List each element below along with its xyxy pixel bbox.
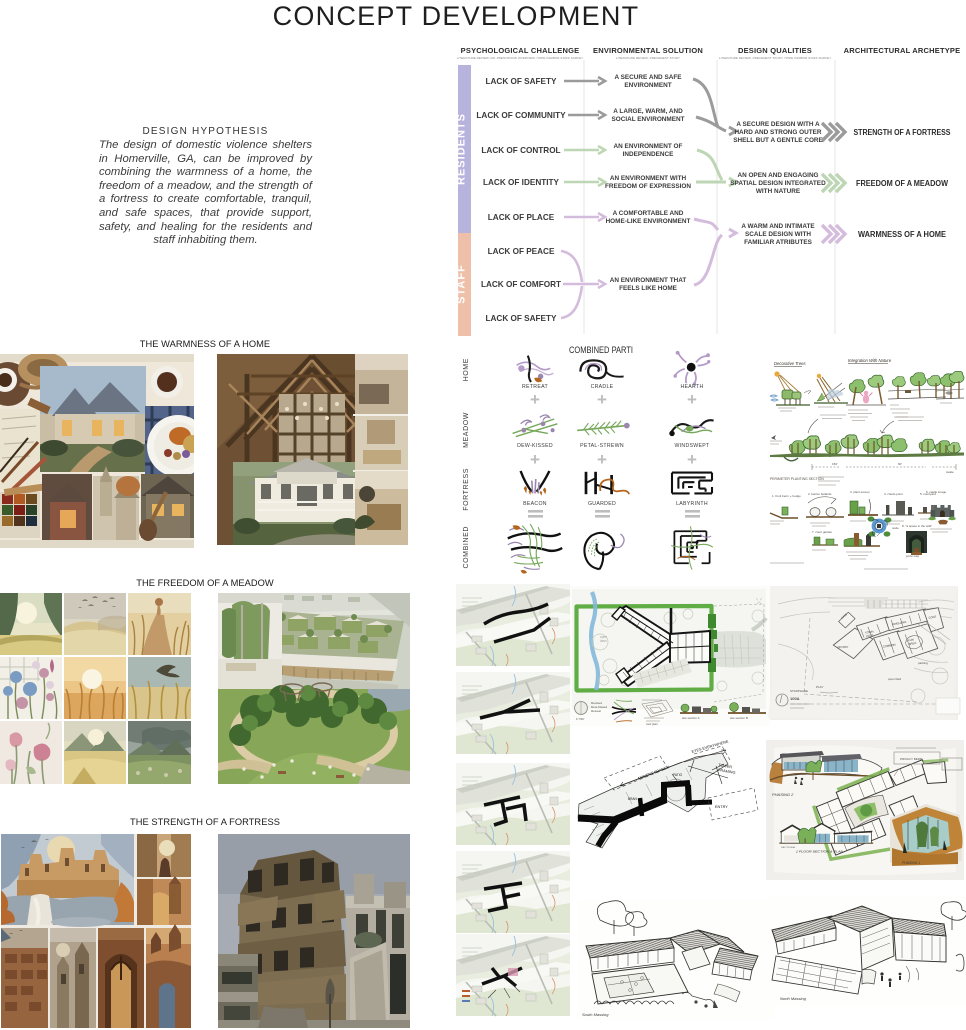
svg-text:LACK OF SAFETY: LACK OF SAFETY bbox=[486, 314, 557, 323]
svg-text:+: + bbox=[687, 390, 697, 409]
svg-text:swale: swale bbox=[946, 470, 954, 474]
svg-text:open field: open field bbox=[888, 677, 901, 681]
svg-text:PERIMETER PLANTING SECTION: PERIMETER PLANTING SECTION bbox=[770, 477, 824, 481]
svg-text:LACK OF COMFORT: LACK OF COMFORT bbox=[481, 280, 561, 289]
svg-text:LACK OF COMMUNITY: LACK OF COMMUNITY bbox=[476, 111, 566, 120]
svg-text:DEW-KISSED: DEW-KISSED bbox=[517, 443, 553, 449]
svg-text:SCALE DESIGN WITH: SCALE DESIGN WITH bbox=[745, 231, 811, 238]
svg-text:roof plan: roof plan bbox=[646, 722, 658, 726]
svg-text:150': 150' bbox=[832, 462, 838, 466]
svg-text:A SECURE DESIGN WITH A: A SECURE DESIGN WITH A bbox=[736, 121, 820, 128]
svg-text:+: + bbox=[530, 390, 540, 409]
svg-text:HOME: HOME bbox=[463, 358, 470, 381]
svg-text:Retreat: Retreat bbox=[591, 709, 601, 713]
svg-text:ENVIRONMENTAL SOLUTION: ENVIRONMENTAL SOLUTION bbox=[593, 46, 703, 55]
svg-text:3. plant screen: 3. plant screen bbox=[850, 490, 870, 494]
svg-text:7. court garden: 7. court garden bbox=[812, 530, 833, 534]
svg-text:LACK OF CONTROL: LACK OF CONTROL bbox=[481, 146, 560, 155]
svg-text:A WARM AND INTIMATE: A WARM AND INTIMATE bbox=[741, 223, 815, 230]
svg-text:INDEPENDENCE: INDEPENDENCE bbox=[623, 151, 675, 158]
svg-text:PHASING 2: PHASING 2 bbox=[772, 792, 794, 797]
svg-text:COMBINED: COMBINED bbox=[463, 526, 470, 569]
svg-text:BRAN: BRAN bbox=[628, 797, 638, 801]
svg-text:2. barrier bollards: 2. barrier bollards bbox=[808, 492, 832, 496]
svg-text:BEACON: BEACON bbox=[523, 501, 547, 507]
svg-text:4. check-point: 4. check-point bbox=[884, 492, 903, 496]
svg-text:PETAL-STREWN: PETAL-STREWN bbox=[580, 443, 624, 449]
svg-text:A SECURE AND SAFE: A SECURE AND SAFE bbox=[615, 74, 683, 81]
svg-text:GUARDED: GUARDED bbox=[588, 501, 616, 507]
svg-text:STARPHASE: STARPHASE bbox=[790, 689, 808, 693]
svg-text:SPATIAL DESIGN INTEGRATED: SPATIAL DESIGN INTEGRATED bbox=[730, 180, 826, 187]
svg-text:LITERATURE REVIEW, PRECEDENT S: LITERATURE REVIEW, PRECEDENT STUDY bbox=[616, 56, 681, 60]
svg-text:site section A: site section A bbox=[682, 716, 700, 720]
svg-text:+: + bbox=[597, 450, 607, 469]
svg-text:LACK OF IDENTITY: LACK OF IDENTITY bbox=[483, 178, 559, 187]
svg-text:LACK OF PEACE: LACK OF PEACE bbox=[488, 247, 555, 256]
svg-text:PATIO: PATIO bbox=[673, 773, 683, 777]
svg-text:ENVIRONMENT: ENVIRONMENT bbox=[624, 82, 671, 89]
svg-text:AN OPEN AND ENGAGING: AN OPEN AND ENGAGING bbox=[737, 172, 818, 179]
svg-text:MEADOW: MEADOW bbox=[463, 412, 470, 448]
svg-text:COMBINED PARTI: COMBINED PARTI bbox=[569, 345, 633, 356]
svg-text:Decorative Trees: Decorative Trees bbox=[774, 361, 806, 366]
svg-text:PRIVACY BERM: PRIVACY BERM bbox=[900, 757, 923, 761]
svg-text:100A: 100A bbox=[790, 696, 800, 701]
svg-text:A LARGE, WARM, AND: A LARGE, WARM, AND bbox=[613, 108, 683, 115]
svg-text:SECTION A: SECTION A bbox=[781, 846, 795, 849]
svg-text:FAMILIAR ATRIBUTES: FAMILIAR ATRIBUTES bbox=[744, 239, 813, 246]
svg-text:parking: parking bbox=[918, 661, 928, 665]
svg-text:ENTRY: ENTRY bbox=[715, 805, 728, 809]
svg-text:PLAY: PLAY bbox=[816, 685, 823, 689]
svg-text:FREEDOM OF A MEADOW: FREEDOM OF A MEADOW bbox=[856, 178, 949, 188]
svg-text:LACK OF SAFETY: LACK OF SAFETY bbox=[486, 77, 557, 86]
svg-text:1. front berm + hedge: 1. front berm + hedge bbox=[772, 494, 801, 498]
svg-text:A COMFORTABLE AND: A COMFORTABLE AND bbox=[613, 210, 684, 217]
svg-text:SOCIAL ENVIRONMENT: SOCIAL ENVIRONMENT bbox=[611, 116, 684, 123]
svg-text:FREEDOM OF EXPRESSION: FREEDOM OF EXPRESSION bbox=[605, 183, 691, 190]
svg-text:LITERATURE REVIEW, DR. PRESTWO: LITERATURE REVIEW, DR. PRESTWOOD INTERVI… bbox=[457, 56, 584, 60]
svg-text:porte way: porte way bbox=[906, 554, 920, 558]
svg-text:+: + bbox=[597, 390, 607, 409]
svg-text:WINDSWEPT: WINDSWEPT bbox=[675, 443, 711, 449]
svg-text:1 FLOOR SECTION & PLAN: 1 FLOOR SECTION & PLAN bbox=[796, 850, 844, 854]
svg-text:PHASING 1: PHASING 1 bbox=[902, 861, 920, 865]
svg-text:STAFF: STAFF bbox=[456, 264, 468, 304]
svg-text:LITERATURE REVIEW, PRECEDENT S: LITERATURE REVIEW, PRECEDENT STUDY, HOPE… bbox=[719, 56, 832, 60]
svg-text:HOME-LIKE ENVIRONMENT: HOME-LIKE ENVIRONMENT bbox=[606, 218, 691, 225]
svg-text:PSYCHOLOGICAL CHALLENGE: PSYCHOLOGICAL CHALLENGE bbox=[461, 46, 580, 55]
svg-text:60': 60' bbox=[898, 462, 902, 466]
svg-text:HARD AND STRONG OUTER: HARD AND STRONG OUTER bbox=[734, 129, 821, 136]
svg-text:+: + bbox=[530, 450, 540, 469]
svg-text:Integration With Nature: Integration With Nature bbox=[848, 358, 892, 363]
svg-text:STRENGTH OF A FORTRESS: STRENGTH OF A FORTRESS bbox=[854, 127, 951, 137]
svg-text:site section B: site section B bbox=[730, 716, 748, 720]
svg-text:AN ENVIRONMENT OF: AN ENVIRONMENT OF bbox=[614, 143, 683, 150]
svg-text:AN ENVIRONMENT THAT: AN ENVIRONMENT THAT bbox=[610, 277, 687, 284]
svg-text:North Massing: North Massing bbox=[780, 996, 807, 1001]
svg-text:SHELL BUT A GENTLE CORE: SHELL BUT A GENTLE CORE bbox=[733, 137, 823, 144]
svg-text:+: + bbox=[687, 450, 697, 469]
svg-text:LACK OF PLACE: LACK OF PLACE bbox=[488, 213, 555, 222]
svg-text:8. "a space in the wild": 8. "a space in the wild" bbox=[902, 524, 932, 528]
svg-text:node: node bbox=[892, 526, 899, 530]
svg-text:RESIDENTS: RESIDENTS bbox=[456, 113, 468, 185]
svg-text:South Massing: South Massing bbox=[582, 1012, 609, 1017]
svg-text:LABYRINTH: LABYRINTH bbox=[676, 501, 708, 507]
svg-text:ARCHITECTURAL ARCHETYPE: ARCHITECTURAL ARCHETYPE bbox=[844, 46, 961, 55]
svg-text:WARMNESS OF A HOME: WARMNESS OF A HOME bbox=[858, 229, 946, 239]
svg-text:FORTRESS: FORTRESS bbox=[463, 468, 470, 511]
svg-text:DR WAY: DR WAY bbox=[838, 645, 849, 649]
svg-text:lawn: lawn bbox=[600, 639, 607, 643]
svg-text:6. castle image: 6. castle image bbox=[926, 490, 947, 494]
svg-text:DESIGN QUALITIES: DESIGN QUALITIES bbox=[738, 46, 812, 55]
svg-text:1"=50': 1"=50' bbox=[576, 717, 585, 721]
svg-text:AN ENVIRONMENT WITH: AN ENVIRONMENT WITH bbox=[610, 175, 687, 182]
svg-text:WITH NATURE: WITH NATURE bbox=[756, 188, 801, 195]
svg-text:FEELS LIKE HOME: FEELS LIKE HOME bbox=[619, 285, 678, 292]
